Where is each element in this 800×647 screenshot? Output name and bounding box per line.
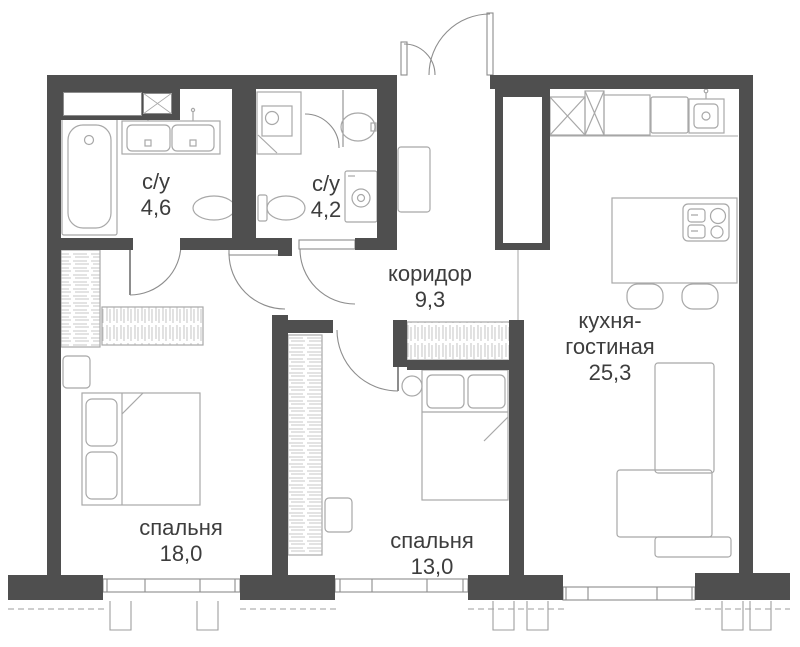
room-name: с/у: [311, 171, 342, 197]
bar-stool: [682, 284, 718, 309]
window-bedroom-small: [335, 579, 468, 592]
bar-stool: [627, 284, 663, 309]
washing-machine: [345, 171, 377, 222]
wall-door-jamb: [278, 250, 292, 256]
wall-bathroom-divider: [232, 89, 256, 240]
nightstand-bedroom-big: [63, 356, 90, 388]
wall-bottom-4: [695, 573, 790, 600]
room-name: с/у: [141, 169, 172, 195]
room-name: спальня: [390, 528, 474, 554]
wall-top-left: [47, 75, 397, 89]
bedroom-big-door: [229, 249, 285, 309]
bathtub: [62, 118, 117, 235]
wall-between-bedrooms: [272, 315, 288, 575]
room-area: 13,0: [390, 554, 474, 580]
bedroom-small-door: [337, 330, 398, 391]
room-name-line1: кухня-: [565, 308, 654, 334]
kitchen-counter: [550, 89, 738, 136]
stool-bedroom-small: [402, 376, 422, 396]
wall-wardrobe-bottom: [407, 360, 512, 370]
bathroom-2-door: [299, 240, 355, 304]
wardrobe-left-bedroom-small: [288, 335, 322, 555]
window-bedroom-big: [103, 579, 240, 592]
room-label-bathroom-2: с/у 4,2: [311, 171, 342, 223]
wall-hall-left: [377, 89, 397, 245]
room-area: 9,3: [388, 287, 472, 313]
wall-bottom-2: [240, 575, 335, 600]
wall-left: [47, 75, 61, 575]
room-name: коридор: [388, 261, 472, 287]
wall-bedroom-small-door-jamb: [393, 320, 407, 367]
room-label-bathroom-1: с/у 4,6: [141, 169, 172, 221]
floor-plan: с/у 4,6 с/у 4,2 коридор 9,3 кухня- гости…: [0, 0, 800, 647]
room-label-kitchen-living: кухня- гостиная 25,3: [565, 308, 654, 386]
niche-cabinet: [63, 92, 142, 116]
shower-tray: [257, 92, 301, 154]
shower-door: [305, 90, 343, 148]
wardrobe-top-bedroom-small: [407, 322, 510, 360]
wardrobe-left-bedroom-big: [61, 250, 100, 347]
sofa: [617, 363, 731, 557]
room-name-line2: гостиная: [565, 334, 654, 360]
hall-console: [398, 147, 430, 212]
wall-bottom-1: [8, 575, 103, 600]
room-area: 4,2: [311, 197, 342, 223]
washbasin: [341, 113, 376, 141]
cooktop: [683, 204, 729, 241]
wall-bedroom-small-right: [509, 320, 524, 575]
wardrobe-top-bedroom-big: [102, 307, 203, 345]
wall-bath1-bottom-left: [47, 238, 133, 250]
wall-right: [739, 75, 753, 573]
room-area: 25,3: [565, 360, 654, 386]
wall-bath1-bottom-right: [180, 238, 292, 250]
wall-top-right: [490, 75, 753, 89]
wall-bottom-3: [468, 575, 563, 600]
window-kitchen: [563, 587, 695, 600]
bed-bedroom-big: [82, 393, 200, 505]
bed-bedroom-small: [422, 370, 508, 500]
bathroom-1-door: [130, 244, 181, 295]
duct-shaft-inner: [503, 97, 542, 243]
room-name: спальня: [139, 515, 223, 541]
toilet-2: [258, 195, 305, 221]
niche-duct-x: [143, 93, 172, 114]
room-area: 4,6: [141, 195, 172, 221]
entrance-door: [401, 13, 493, 75]
room-area: 18,0: [139, 541, 223, 567]
kitchen-island: [612, 198, 737, 309]
room-label-corridor: коридор 9,3: [388, 261, 472, 313]
room-label-bedroom-small: спальня 13,0: [390, 528, 474, 580]
room-label-bedroom-big: спальня 18,0: [139, 515, 223, 567]
nightstand-bedroom-small: [325, 498, 352, 532]
balcony-posts: [110, 601, 771, 630]
